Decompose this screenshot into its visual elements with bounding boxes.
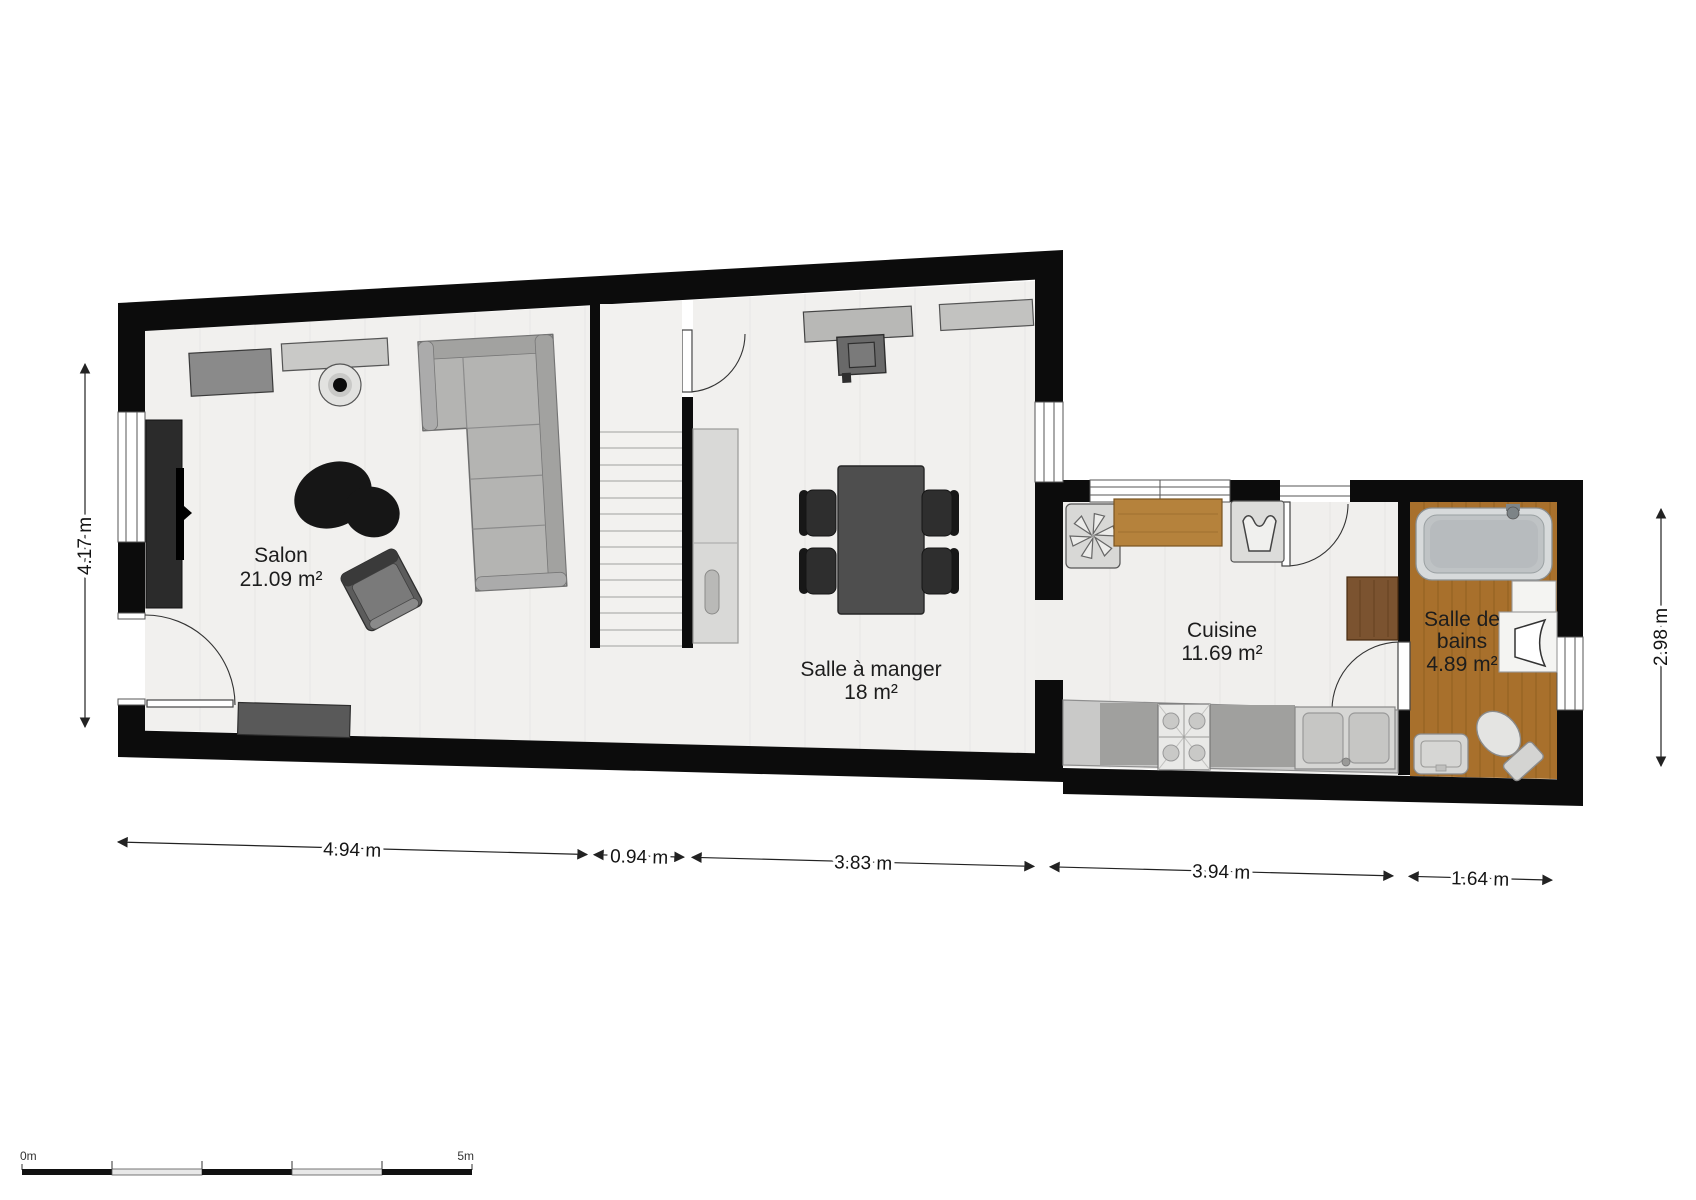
- sideboard-icon: [189, 349, 273, 397]
- dim-kitchen-width: 3.94 m: [1192, 861, 1251, 884]
- dim-bathroom-width: 1.64 m: [1451, 868, 1510, 891]
- dim-dining-width: 3.83 m: [834, 852, 893, 875]
- scale-end-label: 5m: [457, 1149, 474, 1163]
- dim-salon-width: 4.94 m: [323, 839, 382, 862]
- kitchen-bath-wall: [1398, 502, 1410, 642]
- stairs-icon: [600, 304, 682, 648]
- stair-left-wall: [590, 302, 600, 648]
- side-cabinet-icon: [1347, 577, 1398, 640]
- dining-label: Salle à manger: [800, 658, 941, 681]
- kitchen-top-wall: [1035, 480, 1090, 502]
- speaker-icon: [319, 364, 361, 406]
- left-wall: [118, 303, 145, 412]
- bath-counter-icon: [1512, 581, 1556, 613]
- bath-cabinet-icon: [1414, 734, 1468, 774]
- bathtub-icon: [1416, 504, 1552, 580]
- dining-kitchen-wall: [1035, 252, 1063, 402]
- dining-table-icon: [838, 466, 924, 614]
- dining-kitchen-passage: [1035, 600, 1063, 680]
- salon-window: [118, 412, 145, 542]
- bathroom-window: [1557, 637, 1583, 710]
- salon-area-label: 21.09 m²: [240, 568, 323, 591]
- bathroom-area-label: 4.89 m²: [1426, 653, 1497, 676]
- stove-icon: [1158, 704, 1210, 770]
- dim-stair-width: 0.94 m: [610, 846, 669, 869]
- scale-bar: 0m 5m: [20, 1149, 474, 1175]
- dim-right-height: 2.98 m: [1651, 608, 1672, 666]
- kitchen-counter-icon: [1063, 700, 1398, 773]
- dining-window: [1035, 402, 1063, 482]
- fridge-freezer-icon: [1066, 504, 1120, 568]
- kitchen-sink-icon: [1295, 707, 1395, 769]
- salon-label: Salon: [254, 544, 308, 567]
- tall-cabinet-icon: [693, 429, 738, 643]
- floorplan-page: Salon 21.09 m² Salle à manger 18 m² Cuis…: [0, 0, 1696, 1200]
- floorplan-image: Salon 21.09 m² Salle à manger 18 m² Cuis…: [0, 0, 1696, 1200]
- kitchen-wood-counter-icon: [1114, 499, 1222, 546]
- dining-area-label: 18 m²: [844, 681, 898, 704]
- bathroom-label-line1: Salle de: [1424, 608, 1500, 631]
- washbasin-icon: [1499, 612, 1557, 672]
- bench-icon: [238, 702, 351, 737]
- stair-right-wall: [682, 397, 693, 648]
- bathroom-right-wall: [1557, 480, 1583, 637]
- scale-start-label: 0m: [20, 1149, 37, 1163]
- washing-machine-icon: [1231, 501, 1284, 562]
- dim-left-height: 4.17 m: [75, 517, 96, 575]
- kitchen-label: Cuisine: [1187, 619, 1257, 642]
- bathroom-label-line2: bains: [1437, 630, 1487, 653]
- dining-shelf-icon: [939, 299, 1033, 330]
- kitchen-area-label: 11.69 m²: [1181, 642, 1262, 665]
